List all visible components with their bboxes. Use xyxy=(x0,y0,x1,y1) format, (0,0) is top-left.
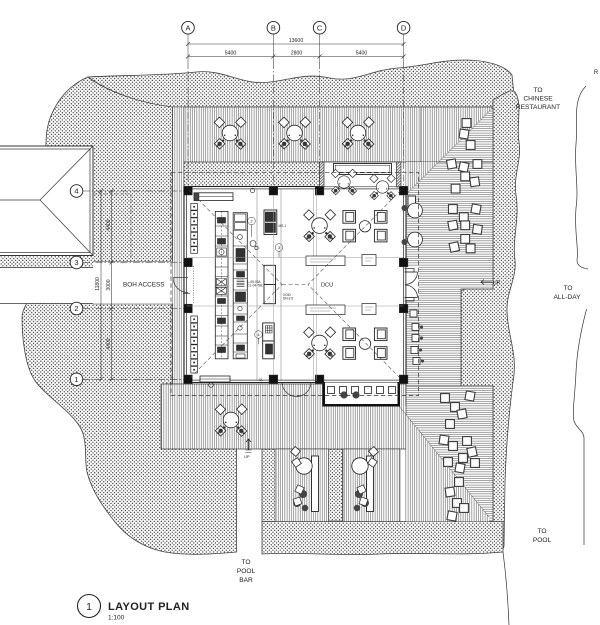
svg-text:CHINESE: CHINESE xyxy=(523,96,553,103)
svg-text:TO: TO xyxy=(241,559,250,566)
svg-text:5400: 5400 xyxy=(356,51,368,57)
svg-text:4400: 4400 xyxy=(106,338,112,349)
svg-text:CL-04-TBL: CL-04-TBL xyxy=(248,284,264,288)
svg-text:D: D xyxy=(401,23,407,32)
svg-text:C: C xyxy=(317,23,323,32)
svg-text:13600: 13600 xyxy=(289,38,304,44)
svg-text:4: 4 xyxy=(74,187,78,196)
svg-text:BOH ACCESS: BOH ACCESS xyxy=(123,282,165,289)
svg-text:UP: UP xyxy=(493,281,501,287)
svg-text:MS-1: MS-1 xyxy=(279,224,287,228)
svg-text:TO: TO xyxy=(563,285,572,292)
svg-text:ALL-DAY: ALL-DAY xyxy=(554,294,582,301)
svg-text:4400: 4400 xyxy=(106,219,112,230)
svg-text:5400: 5400 xyxy=(225,51,237,57)
svg-text:1: 1 xyxy=(86,602,92,613)
svg-text:POOL: POOL xyxy=(237,568,256,575)
svg-text:11800: 11800 xyxy=(95,277,101,291)
svg-text:A: A xyxy=(185,23,190,32)
svg-text:3: 3 xyxy=(74,258,78,267)
svg-text:LAYOUT PLAN: LAYOUT PLAN xyxy=(108,601,190,613)
svg-text:BAR: BAR xyxy=(239,577,253,584)
svg-text:DN-3.5: DN-3.5 xyxy=(283,297,293,301)
svg-text:POOL: POOL xyxy=(533,537,552,544)
svg-text:UP: UP xyxy=(244,454,250,459)
svg-text:B: B xyxy=(271,23,276,32)
svg-text:RESTAURANT: RESTAURANT xyxy=(516,104,560,111)
svg-text:3000: 3000 xyxy=(106,279,112,290)
svg-text:DCU: DCU xyxy=(321,283,333,289)
svg-text:R: R xyxy=(594,70,599,76)
svg-text:1: 1 xyxy=(74,375,78,384)
svg-text:TO: TO xyxy=(537,528,546,535)
svg-text:1:100: 1:100 xyxy=(108,615,125,622)
svg-text:CL: CL xyxy=(259,378,263,382)
svg-text:2800: 2800 xyxy=(291,51,303,57)
svg-text:TO: TO xyxy=(533,87,542,94)
svg-text:2: 2 xyxy=(74,304,78,313)
